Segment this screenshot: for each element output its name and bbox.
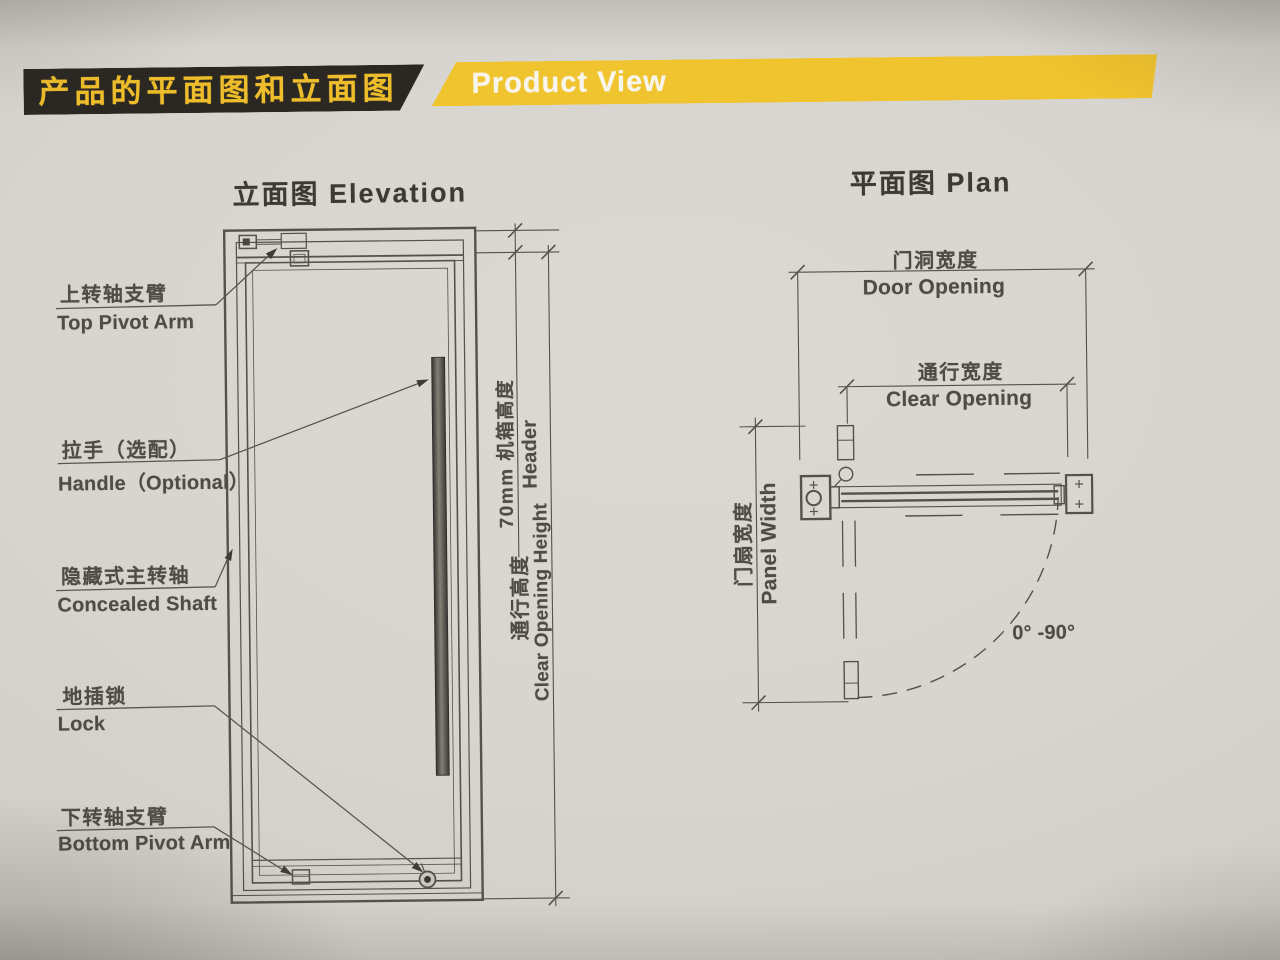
label-handle-cn: 拉手（选配）	[61, 433, 190, 463]
label-lock-en: Lock	[58, 713, 106, 737]
label-bottom-pivot-arm-en: Bottom Pivot Arm	[58, 832, 231, 857]
label-lock-cn: 地插锁	[62, 680, 127, 710]
leader-lock	[215, 704, 416, 868]
door-edge-profile-bottom	[844, 662, 858, 699]
door-leaf-inner	[253, 268, 455, 875]
dim-door-opening-cn: 门洞宽度	[892, 244, 978, 274]
plan-drawing	[800, 423, 1094, 699]
dim-door-opening-en: Door Opening	[863, 275, 1006, 301]
plan-pivot-block	[801, 476, 839, 519]
paper-sheet: 产品的平面图和立面图 Product View 立面图 Elevation 平面…	[0, 0, 1280, 960]
dim-panel-width-en: Panel Width	[757, 482, 782, 604]
arrowhead	[280, 865, 292, 875]
plan-strike-plate	[1054, 475, 1092, 513]
dim-header-height-cn: 70mm 机箱高度	[490, 379, 519, 529]
label-bottom-pivot-arm-cn: 下转轴支臂	[61, 800, 169, 830]
arrowhead	[416, 379, 429, 387]
bottom-rail-line	[252, 858, 461, 860]
threshold-line	[233, 893, 482, 896]
swing-arc	[855, 497, 1060, 697]
door-leaf	[246, 261, 462, 883]
dim-header-height-en: Header	[519, 420, 543, 489]
plan-door-panel-closed	[839, 484, 1061, 508]
leader-handle	[219, 382, 422, 459]
swing-angle-label: 0° -90°	[1012, 622, 1075, 646]
label-concealed-shaft-cn: 隐藏式主转轴	[61, 559, 190, 589]
handle-bar	[432, 357, 450, 775]
label-concealed-shaft-en: Concealed Shaft	[57, 593, 217, 618]
label-handle-en: Handle（Optional）	[58, 465, 249, 496]
dim-panel-width-cn: 门扇宽度	[727, 501, 757, 587]
dim-clear-opening-en: Clear Opening	[886, 387, 1032, 413]
label-top-pivot-arm-en: Top Pivot Arm	[57, 311, 194, 336]
label-top-pivot-arm-cn: 上转轴支臂	[60, 277, 168, 307]
pivot-point-tick	[834, 479, 842, 487]
jamb-profile-top	[837, 426, 853, 460]
ext-line-top	[476, 230, 559, 231]
plan-door-panel-open	[842, 521, 856, 660]
wall-dash-lines	[905, 473, 1060, 516]
elevation-drawing	[224, 228, 483, 903]
dim-clear-opening-height-cn: 通行高度	[503, 554, 533, 640]
floor-lock	[419, 863, 435, 887]
catalog-page-photo: 产品的平面图和立面图 Product View 立面图 Elevation 平面…	[0, 0, 1280, 960]
bottom-rail-line2	[252, 864, 461, 866]
dim-clear-opening-cn: 通行宽度	[918, 355, 1004, 385]
dim-clear-opening-height-en: Clear Opening Height	[530, 503, 554, 701]
